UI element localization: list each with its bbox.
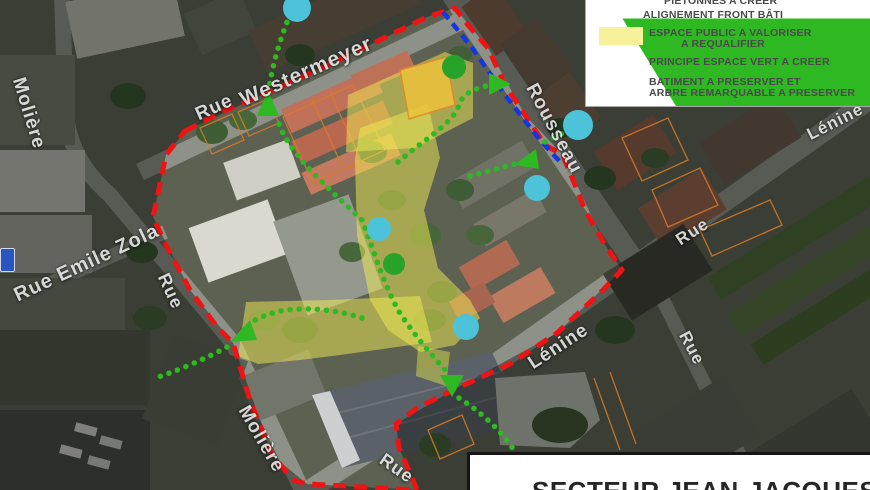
legend-label-preserved-2: ARBRE REMARQUABLE A PRESERVER <box>649 87 855 99</box>
public-space-swatch <box>599 27 643 45</box>
sector-title-box: SECTEUR JEAN-JACQUES ROUSSEAU <box>467 452 870 490</box>
road-sign <box>0 248 15 272</box>
legend-label-pedestrian: PIETONNES A CREER <box>664 0 777 7</box>
legend-box: PIETONNES A CREER ALIGNEMENT FRONT BÂTI … <box>585 0 870 107</box>
arrow-east-crossing <box>514 149 539 169</box>
legend-label-green-space: PRINCIPE ESPACE VERT A CREER <box>649 56 830 68</box>
sector-title: SECTEUR JEAN-JACQUES ROUSSEAU <box>470 476 870 490</box>
legend-label-alignment: ALIGNEMENT FRONT BÂTI <box>643 9 783 21</box>
urban-plan-map: Rue Westermeyer Rue Emile Zola Molière R… <box>0 0 870 490</box>
legend-label-public-space-2: A REQUALIFIER <box>681 38 765 50</box>
